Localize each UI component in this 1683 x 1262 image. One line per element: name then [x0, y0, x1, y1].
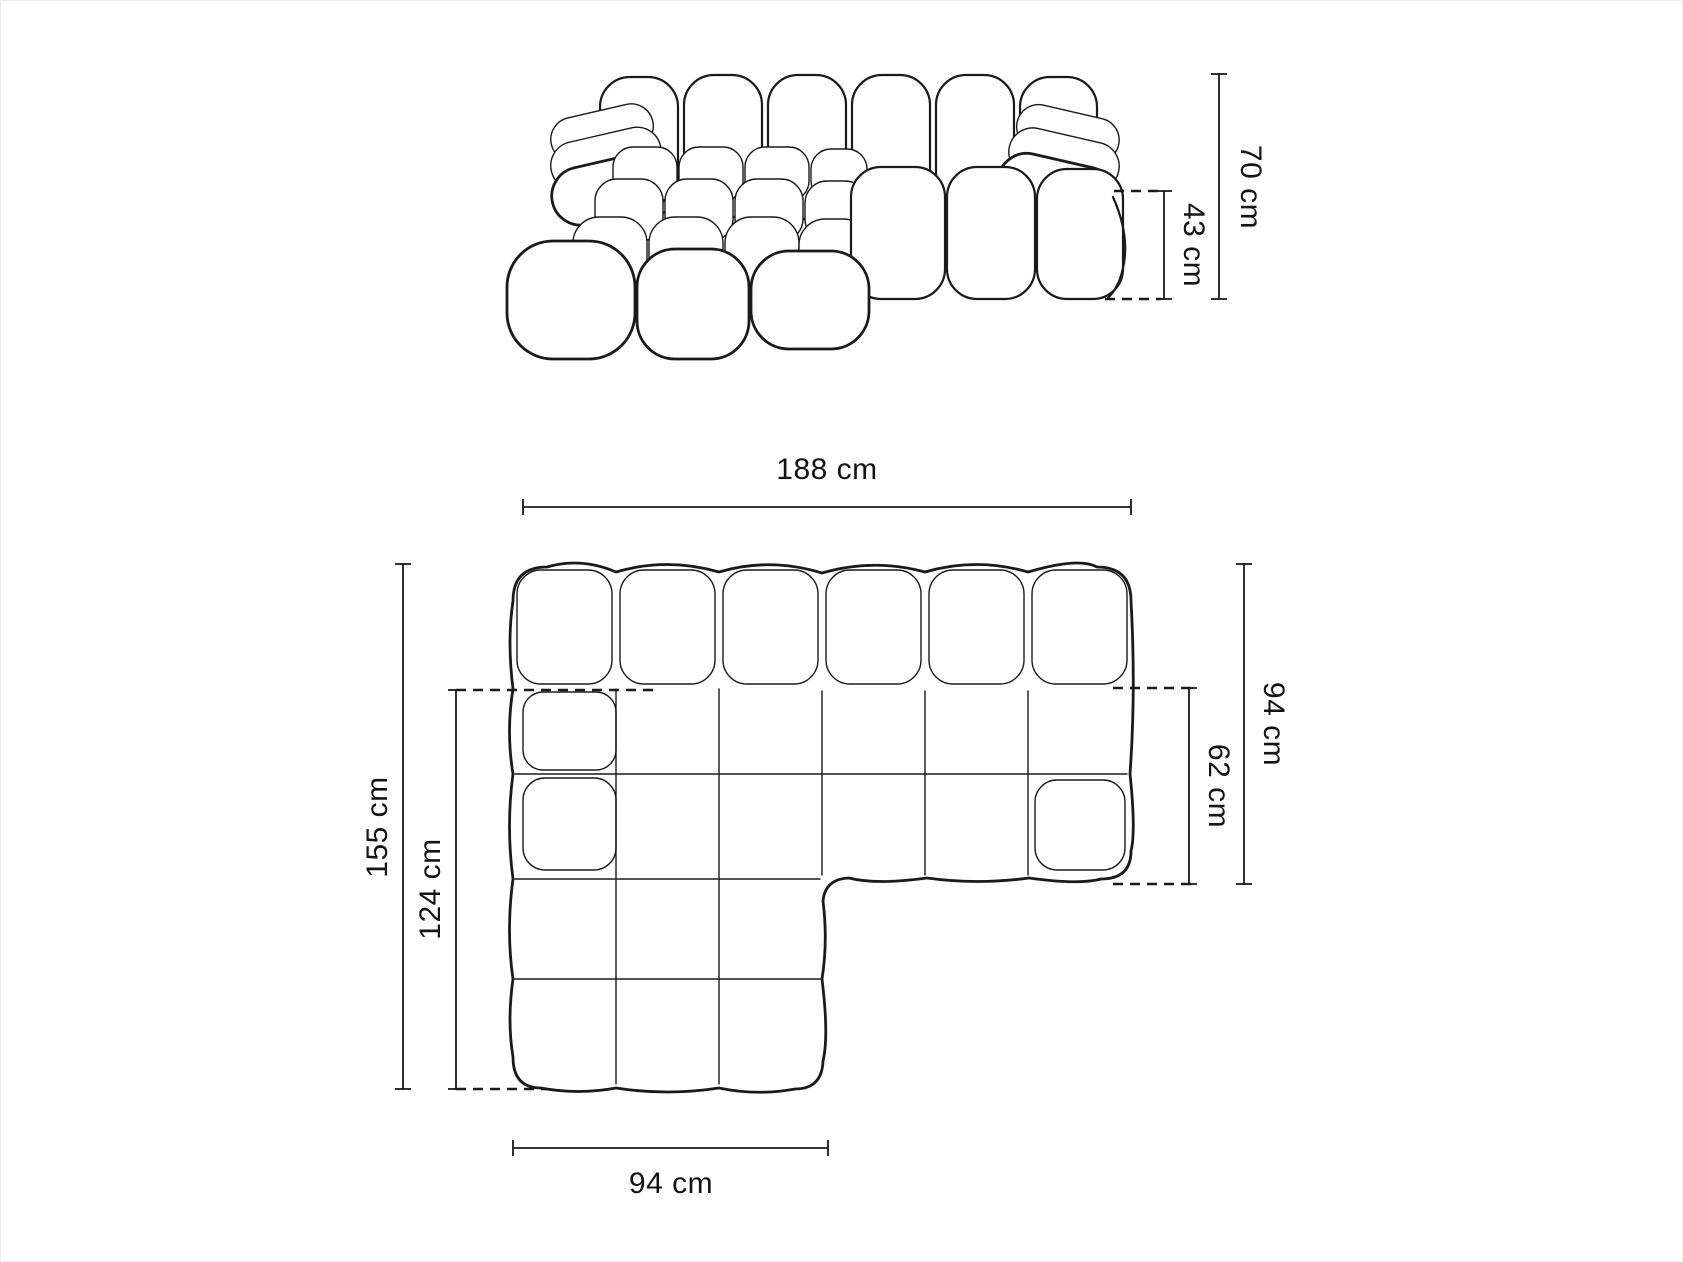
dimension-label-total-width: 188 cm — [776, 453, 877, 486]
dimension-label-seat-depth: 62 cm — [1202, 744, 1235, 828]
dimension-total-height: 70 cm — [1211, 74, 1267, 299]
dimension-chaise-width: 94 cm — [513, 1140, 828, 1200]
dimension-chaise-extension: 124 cm — [414, 690, 464, 1089]
dimension-diagram: 43 cm 70 cm — [0, 0, 1683, 1262]
dimension-seat-depth: 62 cm — [1181, 688, 1235, 884]
dimension-total-width: 188 cm — [523, 453, 1131, 515]
diagram-svg: 43 cm 70 cm — [1, 1, 1683, 1262]
sofa-plan-drawing — [510, 563, 1134, 1092]
cushion — [637, 249, 749, 359]
dimension-label-total-height: 70 cm — [1234, 145, 1267, 229]
sofa-elevation-drawing — [507, 75, 1133, 359]
dimension-right-depth: 94 cm — [1236, 564, 1290, 884]
dimension-label-chaise-extension: 124 cm — [414, 838, 447, 939]
cushion — [1037, 169, 1123, 299]
elevation-dimensions: 43 cm 70 cm — [1105, 74, 1267, 299]
cushion — [947, 167, 1035, 299]
dimension-label-right-depth: 94 cm — [1257, 682, 1290, 766]
cushion — [751, 251, 869, 349]
right-seat-cushions — [851, 167, 1125, 299]
dimension-seat-height: 43 cm — [1156, 191, 1210, 299]
dimension-total-depth: 155 cm — [361, 564, 411, 1089]
chaise-front-cushions — [507, 241, 869, 359]
cushion — [507, 241, 635, 359]
dimension-label-chaise-width: 94 cm — [629, 1167, 713, 1200]
dimension-label-seat-height: 43 cm — [1177, 203, 1210, 287]
dimension-label-total-depth: 155 cm — [361, 776, 394, 877]
